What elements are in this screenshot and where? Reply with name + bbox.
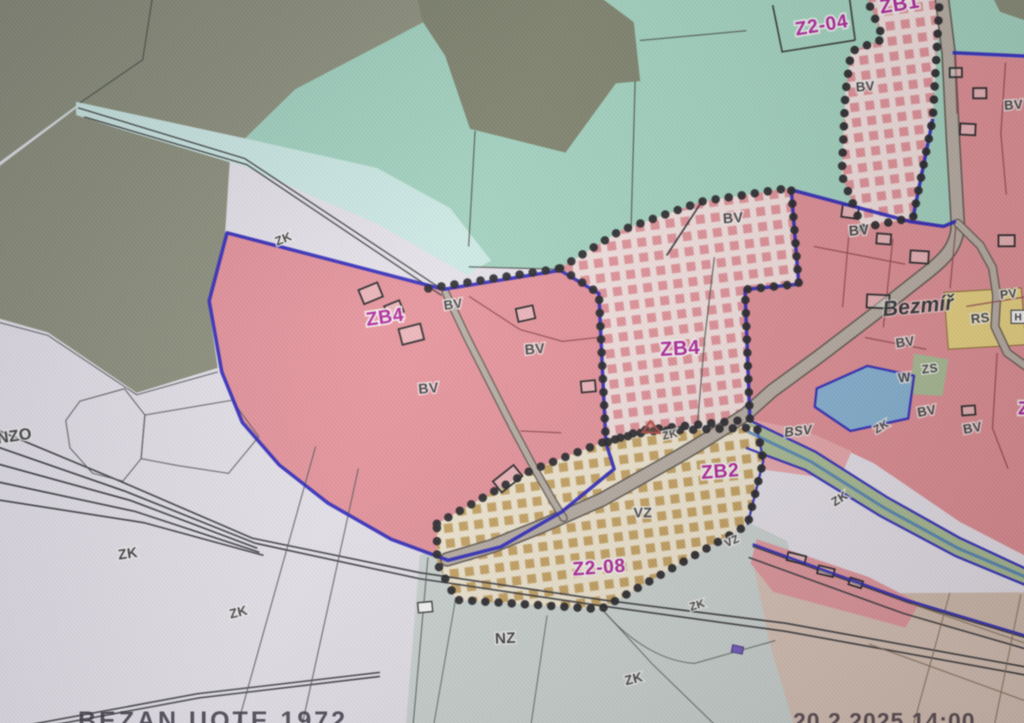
- label-vz-1: VZ: [633, 505, 652, 521]
- violet-building: [731, 645, 743, 654]
- label-bv-5: BV: [443, 295, 464, 313]
- label-bv-3: BV: [722, 210, 744, 228]
- label-pv: PV: [999, 286, 1018, 302]
- label-zone-z-clipped: Z: [1018, 398, 1024, 419]
- label-bv-1: BV: [855, 78, 875, 94]
- label-bv-2: BV: [1004, 97, 1024, 113]
- label-zs: ZS: [921, 361, 939, 377]
- label-zone-z2-08: Z2-08: [572, 556, 627, 581]
- label-bv-4: BV: [848, 222, 870, 240]
- map-canvas[interactable]: Z2-04 ZB1 ZB4 ZB4 ZB2 Z2-08 Z BV BV BV B…: [0, 0, 1024, 723]
- label-bv-6: BV: [524, 341, 546, 359]
- map-viewport[interactable]: Z2-04 ZB1 ZB4 ZB4 ZB2 Z2-08 Z BV BV BV B…: [0, 0, 1024, 723]
- footer-datetime-clipped: 20.2.2025 14:00: [793, 708, 976, 723]
- label-zk-5: ZK: [117, 545, 139, 564]
- label-w: W: [897, 369, 912, 385]
- label-zone-zb4-east: ZB4: [659, 337, 700, 361]
- label-bsv: BSV: [783, 422, 813, 440]
- label-bv-7: BV: [418, 380, 440, 398]
- building-white: [418, 601, 433, 612]
- label-zone-zb2: ZB2: [701, 460, 741, 484]
- footer-title-clipped: BEZAN UOTE 1972: [78, 707, 348, 723]
- label-rs: RS: [970, 310, 990, 327]
- label-h-symbol: H: [1014, 312, 1022, 323]
- label-bv-8: BV: [895, 333, 916, 351]
- label-nz: NZ: [495, 630, 517, 648]
